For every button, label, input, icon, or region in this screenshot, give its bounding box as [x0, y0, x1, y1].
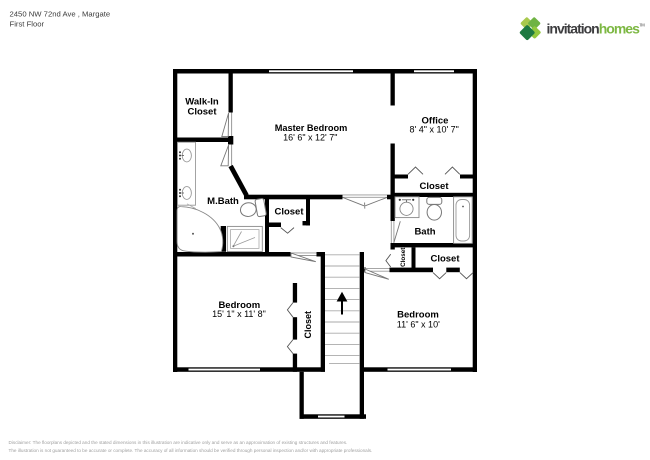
svg-text:15' 1" x 11' 8": 15' 1" x 11' 8": [212, 309, 266, 319]
svg-text:Closet: Closet: [419, 181, 449, 192]
svg-text:2450 NW 72nd Ave , Margate: 2450 NW 72nd Ave , Margate: [10, 9, 111, 18]
svg-text:M.Bath: M.Bath: [207, 196, 239, 207]
svg-text:11' 6" x 10': 11' 6" x 10': [397, 319, 440, 329]
svg-text:Closet: Closet: [274, 206, 304, 217]
svg-text:First Floor: First Floor: [10, 19, 45, 28]
svg-text:16' 6" x 12' 7": 16' 6" x 12' 7": [283, 133, 337, 143]
svg-text:The illustration is not guaran: The illustration is not guaranteed to be…: [9, 448, 373, 453]
svg-text:invitationhomesTM: invitationhomesTM: [547, 21, 646, 37]
svg-text:Bath: Bath: [414, 227, 435, 238]
svg-text:Master Bedroom: Master Bedroom: [275, 123, 348, 133]
svg-text:Closet: Closet: [400, 247, 407, 267]
svg-text:Closet: Closet: [430, 254, 460, 265]
svg-text:8' 4" x 10' 7": 8' 4" x 10' 7": [410, 124, 459, 134]
svg-text:Disclaimer: The floorplans dep: Disclaimer: The floorplans depicted and …: [9, 440, 348, 445]
svg-text:Closet: Closet: [187, 106, 217, 117]
svg-text:Closet: Closet: [303, 311, 313, 339]
